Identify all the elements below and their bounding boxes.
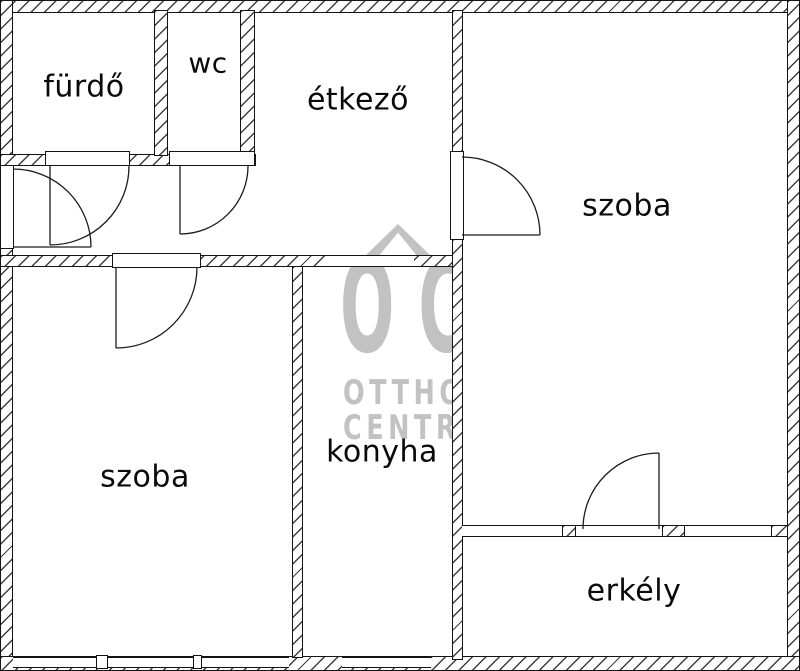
floor-plan: OC OTTHON CENTRUM fürdő wc étkező [0,0,800,671]
room-label-room-left: szoba [100,460,190,495]
room-label-kitchen: konyha [326,435,438,470]
room-label-balcony: erkély [587,574,682,609]
room-label-bathroom: fürdő [43,70,124,105]
door-room-right [462,157,540,235]
room-label-room-right: szoba [582,189,672,224]
door-entrance [13,169,91,247]
door-balcony [583,453,659,529]
door-wc [180,166,248,234]
door-room-left [116,267,197,348]
room-label-wc: wc [188,47,227,80]
room-label-dining: étkező [307,83,409,118]
